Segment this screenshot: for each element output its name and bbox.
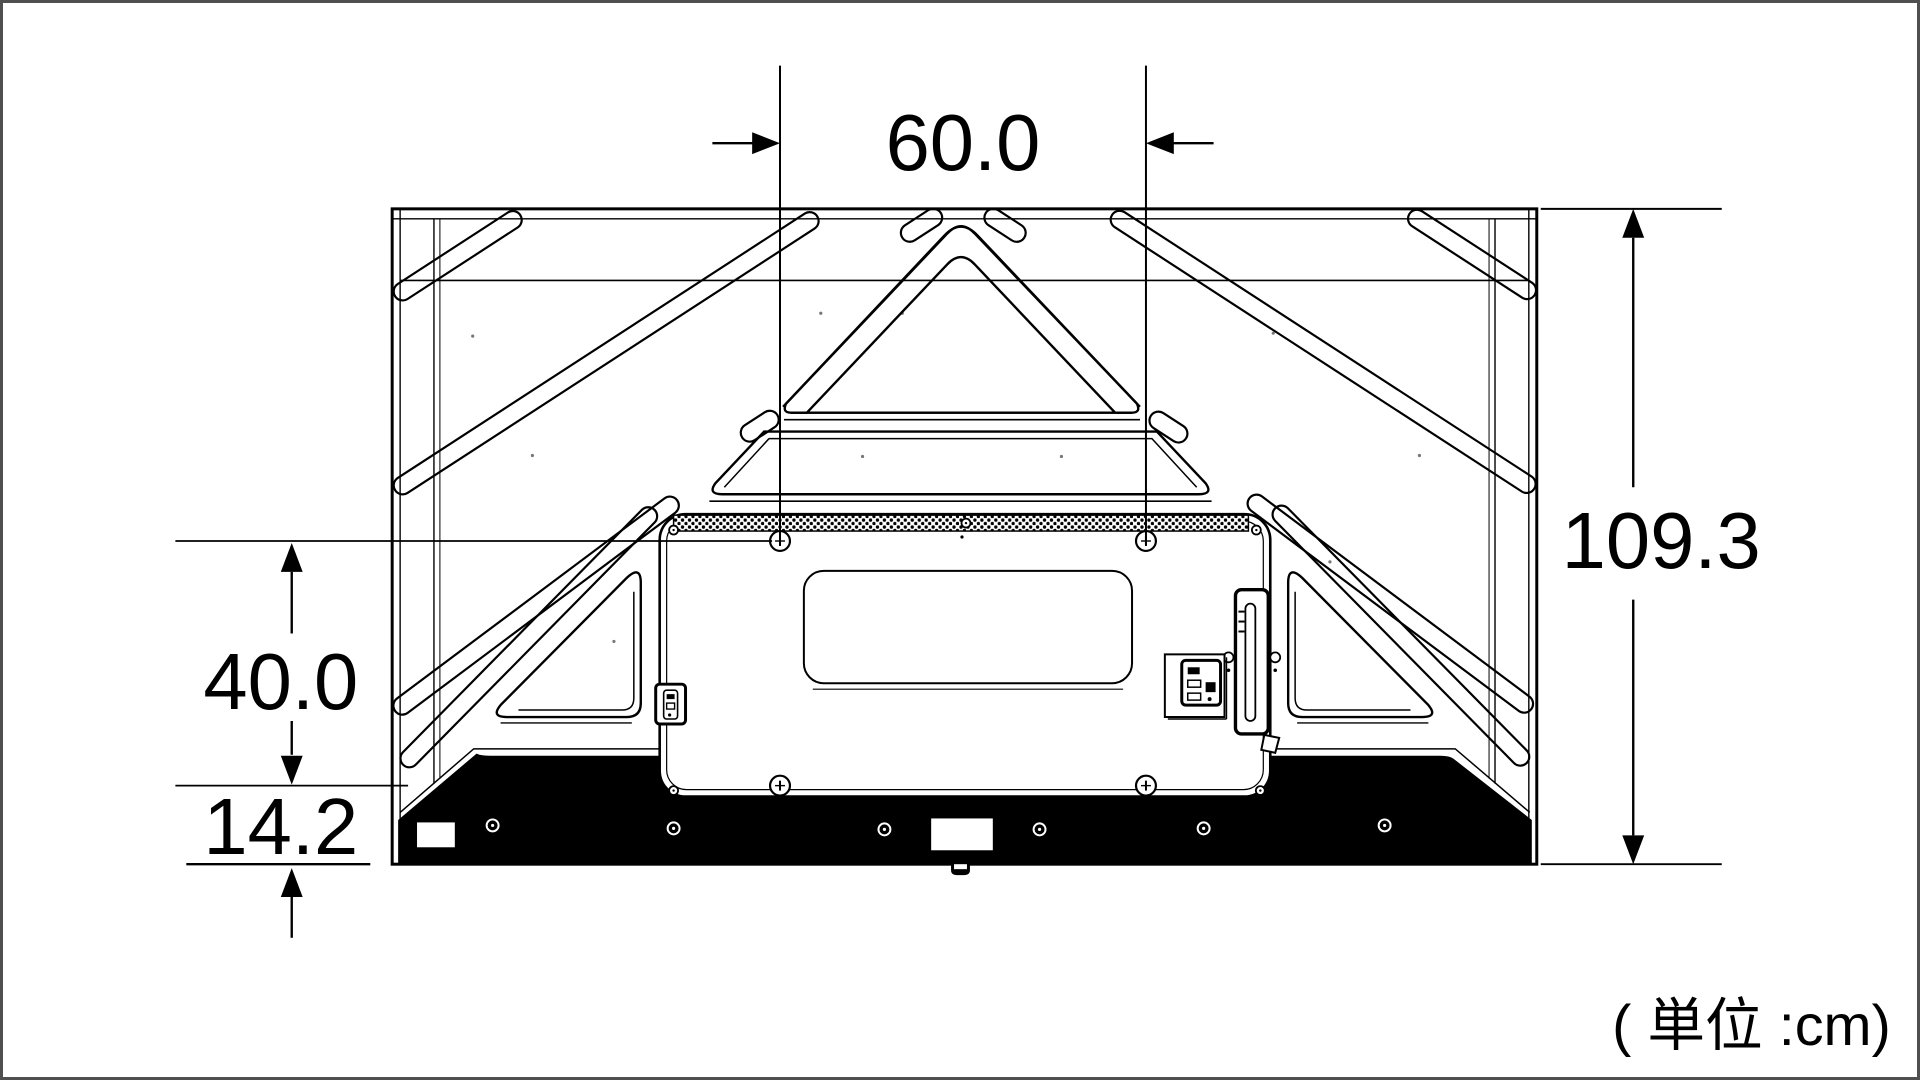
arrowhead-up xyxy=(281,543,303,572)
dim-mount-height-label: 40.0 xyxy=(203,637,358,726)
dim-total-height-label: 109.3 xyxy=(1562,496,1761,585)
arrowhead-up xyxy=(281,868,303,897)
connector-label xyxy=(1165,654,1227,719)
dimension-bottom-offset: 14.2 xyxy=(186,782,370,938)
port-icon-1 xyxy=(1188,667,1200,674)
bottom-bar-left-label xyxy=(417,822,455,847)
port-icon-dot xyxy=(1208,697,1212,701)
bottom-center-tab-notch xyxy=(954,864,967,869)
arrowhead-down xyxy=(281,756,303,785)
vesa-screw-bottom-left xyxy=(770,776,790,796)
handle-bracket-foot xyxy=(1261,735,1279,753)
arrowhead-right-pointing xyxy=(752,132,780,154)
tv-rear-dimension-diagram: 60.0 109.3 40.0 14.2 ( 単位 :cm) xyxy=(3,3,1917,1077)
bottom-center-label xyxy=(931,818,993,850)
unit-note: ( 単位 :cm) xyxy=(1612,994,1891,1058)
dimension-drawing-page: 60.0 109.3 40.0 14.2 ( 単位 :cm) xyxy=(0,0,1920,1080)
port-icon-4 xyxy=(1206,682,1216,692)
cable-latch xyxy=(656,684,686,724)
dim-bottom-offset-label: 14.2 xyxy=(203,782,358,871)
vesa-screw-bottom-right xyxy=(1136,776,1156,796)
dim-mount-width-label: 60.0 xyxy=(886,98,1041,187)
arrowhead-left-pointing xyxy=(1146,132,1174,154)
arrowhead-down xyxy=(1622,835,1644,864)
arrowhead-up xyxy=(1622,209,1644,238)
dimension-total-height: 109.3 xyxy=(1541,209,1761,864)
vesa-mount-plate xyxy=(656,514,1281,796)
